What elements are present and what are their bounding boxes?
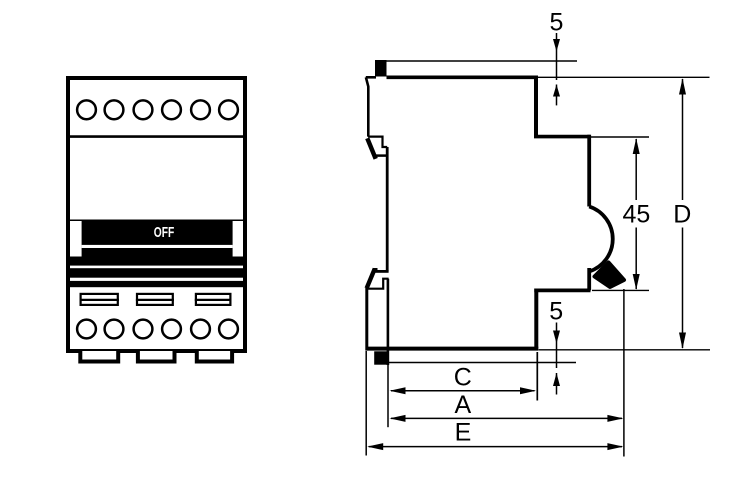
svg-text:45: 45 bbox=[622, 200, 650, 228]
svg-text:5: 5 bbox=[549, 297, 563, 325]
svg-text:D: D bbox=[673, 200, 691, 228]
svg-text:A: A bbox=[454, 391, 471, 419]
svg-text:OFF: OFF bbox=[154, 224, 175, 241]
svg-text:5: 5 bbox=[549, 8, 563, 36]
svg-text:C: C bbox=[454, 364, 472, 392]
svg-text:E: E bbox=[455, 418, 472, 446]
